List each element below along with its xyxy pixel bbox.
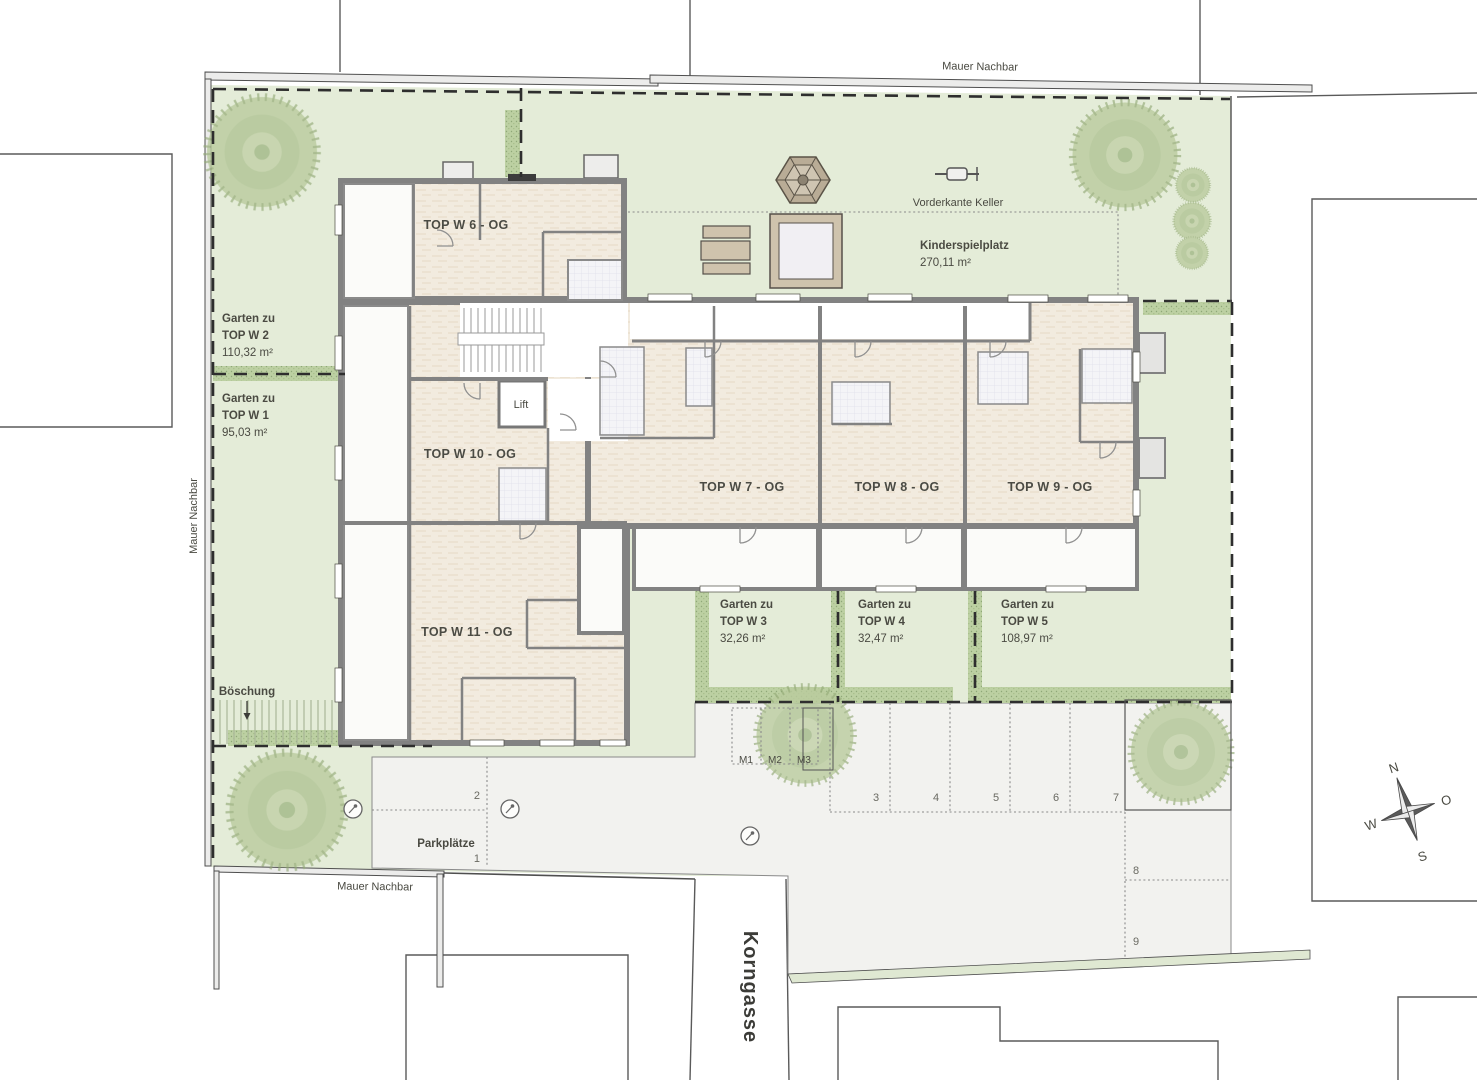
svg-text:TOP W 4: TOP W 4 (858, 616, 905, 628)
parking-space-8: 8 (1133, 865, 1139, 877)
svg-text:32,26 m²: 32,26 m² (720, 633, 766, 645)
plan-drawing: N O W S Mauer Nachbar Mauer Nachbar Maue… (0, 0, 1477, 1080)
svg-text:Garten zu: Garten zu (222, 313, 275, 325)
lift-label: Lift (514, 399, 529, 411)
apartment-label-w10: TOP W 10 - OG (424, 447, 516, 461)
garden-label-w1: Garten zu TOP W 1 95,03 m² (222, 393, 275, 439)
apartment-label-w7: TOP W 7 - OG (699, 480, 784, 494)
svg-text:Garten zu: Garten zu (1001, 599, 1054, 611)
svg-text:Garten zu: Garten zu (720, 599, 773, 611)
tree-icon (1131, 702, 1231, 802)
svg-text:TOP W 2: TOP W 2 (222, 330, 269, 342)
svg-text:95,03 m²: 95,03 m² (222, 427, 268, 439)
svg-text:Garten zu: Garten zu (222, 393, 275, 405)
parking-space-4: 4 (933, 792, 939, 804)
parking-space-2: 2 (474, 790, 480, 802)
parking-space-5: 5 (993, 792, 999, 804)
utility-symbol (741, 827, 759, 845)
apartment-label-w11: TOP W 11 - OG (421, 625, 513, 639)
apartment-label-w8: TOP W 8 - OG (854, 480, 939, 494)
bench-icons (701, 226, 750, 274)
utility-symbol (344, 800, 362, 818)
playground-area: 270,11 m² (920, 257, 971, 269)
wall-label-bottom: Mauer Nachbar (337, 880, 413, 893)
moped-space-m3: M3 (797, 755, 811, 766)
moped-space-m2: M2 (768, 755, 782, 766)
parking-space-3: 3 (873, 792, 879, 804)
utility-symbol (501, 800, 519, 818)
parking-label: Parkplätze (417, 838, 475, 850)
svg-text:TOP W 5: TOP W 5 (1001, 616, 1048, 628)
svg-text:TOP W 3: TOP W 3 (720, 616, 767, 628)
svg-text:TOP W 1: TOP W 1 (222, 410, 269, 422)
parking-space-1: 1 (474, 853, 480, 865)
bush-icon (1176, 237, 1208, 269)
garden-label-w2: Garten zu TOP W 2 110,32 m² (222, 313, 275, 359)
bush-icon (1176, 168, 1210, 202)
tree-icon (230, 753, 345, 868)
street-label: Korngasse (739, 931, 761, 1043)
apartment-label-w6: TOP W 6 - OG (423, 218, 508, 232)
wall-label-left: Mauer Nachbar (188, 478, 200, 554)
wall-label-top: Mauer Nachbar (942, 60, 1018, 73)
corridor (630, 303, 1030, 339)
svg-text:32,47 m²: 32,47 m² (858, 633, 904, 645)
tree-icon (1073, 103, 1178, 208)
bush-icon (1174, 203, 1211, 240)
site-plan: N O W S Mauer Nachbar Mauer Nachbar Maue… (0, 0, 1477, 1080)
parking-space-7: 7 (1113, 792, 1119, 804)
apartment-label-w9: TOP W 9 - OG (1007, 480, 1092, 494)
slope-label: Böschung (219, 686, 275, 698)
garden-label-w4: Garten zu TOP W 4 32,47 m² (858, 599, 911, 645)
playground-title: Kinderspielplatz (920, 240, 1009, 252)
svg-text:108,97 m²: 108,97 m² (1001, 633, 1053, 645)
moped-space-m1: M1 (739, 755, 753, 766)
keller-label: Vorderkante Keller (913, 197, 1004, 209)
garden-label-w5: Garten zu TOP W 5 108,97 m² (1001, 599, 1054, 645)
tree-icon (207, 97, 317, 207)
stair-landing (458, 333, 544, 345)
svg-text:Garten zu: Garten zu (858, 599, 911, 611)
sandbox-inner (779, 223, 833, 279)
parking-space-9: 9 (1133, 936, 1139, 948)
svg-text:110,32 m²: 110,32 m² (222, 347, 273, 359)
garden-label-w3: Garten zu TOP W 3 32,26 m² (720, 599, 773, 645)
parking-space-6: 6 (1053, 792, 1059, 804)
